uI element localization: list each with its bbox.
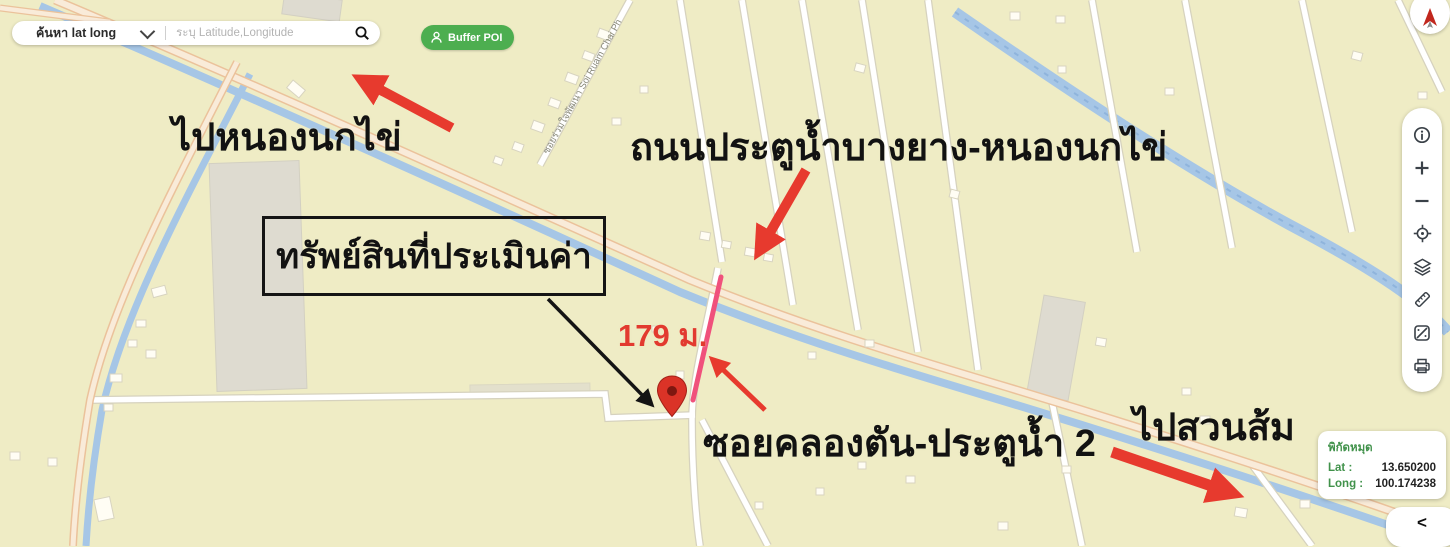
label-soi: ซอยคลองตัน-ประตูน้ำ 2 — [703, 412, 1096, 473]
long-row: Long : 100.174238 — [1328, 478, 1436, 490]
long-value: 100.174238 — [1375, 478, 1436, 490]
info-button[interactable] — [1402, 118, 1442, 151]
map-diagonal-icon — [1413, 324, 1431, 342]
search-bar: ค้นหา lat long — [12, 21, 380, 45]
map-toolbar — [1402, 108, 1442, 392]
info-icon — [1413, 126, 1431, 144]
collapse-panel-button[interactable]: < — [1386, 507, 1450, 547]
search-input[interactable] — [174, 26, 354, 40]
lat-row: Lat : 13.650200 — [1328, 462, 1436, 474]
layers-button[interactable] — [1402, 250, 1442, 283]
label-to-nong-nok-khai: ไปหนองนกไข่ — [172, 106, 402, 167]
map-style-button[interactable] — [1402, 316, 1442, 349]
lat-label: Lat : — [1328, 462, 1352, 474]
buffer-poi-button[interactable]: Buffer POI — [421, 25, 514, 50]
person-pin-icon — [430, 31, 443, 44]
layers-icon — [1413, 257, 1432, 276]
label-main-road: ถนนประตูน้ำบางยาง-หนองนกไข่ — [630, 116, 1167, 177]
zoom-in-button[interactable] — [1402, 151, 1442, 184]
property-callout-box: ทรัพย์สินที่ประเมินค่า — [262, 216, 606, 296]
chevron-left-icon: < — [1417, 513, 1427, 533]
ruler-icon — [1413, 290, 1432, 309]
label-distance: 179 ม. — [618, 310, 707, 360]
coordinates-title: พิกัดหมุด — [1328, 439, 1436, 457]
north-arrow-icon — [1418, 4, 1442, 34]
minus-icon — [1413, 192, 1431, 210]
print-button[interactable] — [1402, 349, 1442, 382]
crosshair-icon — [1413, 224, 1432, 243]
chevron-down-icon — [140, 23, 156, 39]
search-type-dropdown[interactable]: ค้นหา lat long — [22, 23, 153, 43]
coordinates-panel: พิกัดหมุด Lat : 13.650200 Long : 100.174… — [1318, 431, 1446, 499]
property-callout-label: ทรัพย์สินที่ประเมินค่า — [276, 229, 592, 284]
buffer-poi-label: Buffer POI — [448, 32, 502, 44]
divider — [165, 26, 166, 40]
plus-icon — [1413, 159, 1431, 177]
lat-value: 13.650200 — [1382, 462, 1436, 474]
locate-button[interactable] — [1402, 217, 1442, 250]
label-to-suan-som: ไปสวนส้ม — [1133, 396, 1295, 457]
long-label: Long : — [1328, 478, 1363, 490]
search-icon[interactable] — [354, 25, 370, 41]
zoom-out-button[interactable] — [1402, 184, 1442, 217]
measure-button[interactable] — [1402, 283, 1442, 316]
printer-icon — [1413, 357, 1431, 375]
search-type-label: ค้นหา lat long — [36, 23, 116, 43]
